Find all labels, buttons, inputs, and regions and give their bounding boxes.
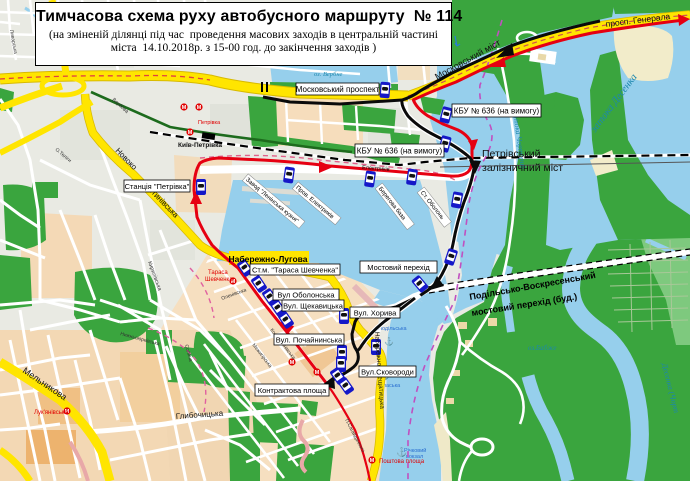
svg-text:Вул. Почайнинська: Вул. Почайнинська — [276, 336, 343, 345]
svg-text:Вул. Щекавицька: Вул. Щекавицька — [283, 302, 344, 311]
svg-text:оз.Бабже: оз.Бабже — [528, 344, 556, 352]
svg-text:Набережно-Лугова: Набережно-Лугова — [229, 254, 308, 264]
svg-text:Вул. Хорива: Вул. Хорива — [354, 309, 397, 318]
svg-text:оз. Вербне: оз. Вербне — [314, 71, 343, 78]
svg-text:Петрівка: Петрівка — [198, 120, 221, 126]
svg-text:КБУ № 636 (на вимогу): КБУ № 636 (на вимогу) — [454, 107, 540, 116]
svg-text:Київ-Петрівка: Київ-Петрівка — [178, 141, 222, 149]
svg-text:залізничний міст: залізничний міст — [482, 162, 563, 174]
svg-text:Поштова площа: Поштова площа — [379, 459, 425, 465]
svg-text:⚓: ⚓ — [384, 336, 394, 346]
svg-text:Вул Оболонська: Вул Оболонська — [277, 291, 335, 300]
svg-text:Петрівський: Петрівський — [482, 148, 541, 160]
svg-text:Станція "Петрівка": Станція "Петрівка" — [125, 182, 190, 191]
svg-text:КБУ № 636 (на вимогу): КБУ № 636 (на вимогу) — [357, 147, 443, 156]
svg-text:Ст.м. "Тараса Шевченка": Ст.м. "Тараса Шевченка" — [252, 266, 338, 275]
svg-text:Тараса: Тараса — [208, 270, 228, 276]
svg-text:Вул.Сковороди: Вул.Сковороди — [361, 368, 414, 377]
svg-text:Подільська: Подільська — [378, 326, 408, 332]
svg-text:Лук'янівська: Лук'янівська — [34, 410, 69, 416]
svg-text:Шевченка: Шевченка — [205, 277, 233, 283]
svg-text:Московський проспект: Московський проспект — [296, 85, 380, 94]
svg-text:Контрактова площа: Контрактова площа — [258, 386, 327, 395]
svg-text:Мостовий перехід: Мостовий перехід — [367, 263, 430, 272]
